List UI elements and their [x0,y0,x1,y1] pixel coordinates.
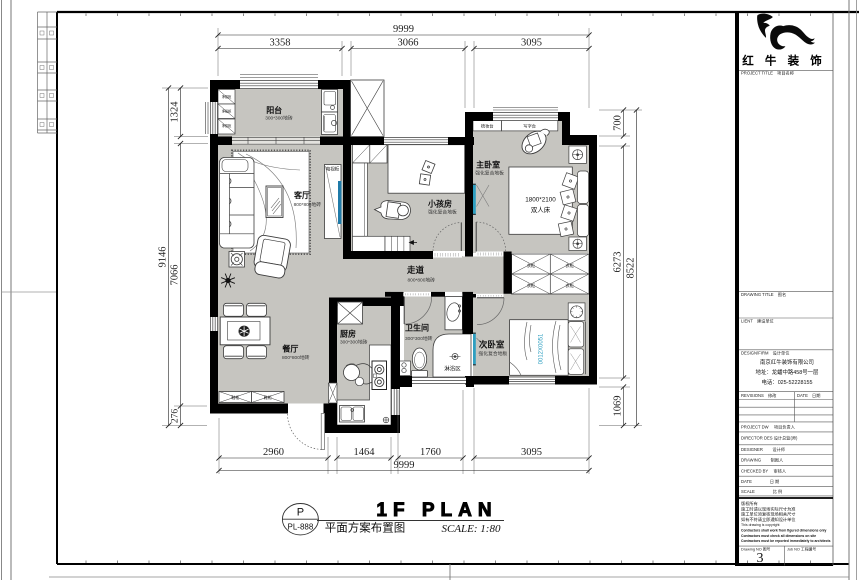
svg-text:如有不符请立即通知设计单位: 如有不符请立即通知设计单位 [741,516,795,523]
svg-text:1464: 1464 [354,447,376,458]
svg-text:9999: 9999 [394,460,415,471]
svg-text:7066: 7066 [170,265,181,286]
svg-text:厨房: 厨房 [340,329,356,339]
svg-text:强化复合地板: 强化复合地板 [428,208,457,215]
svg-text:强化复合地板: 强化复合地板 [479,350,508,357]
svg-text:800*800地砖: 800*800地砖 [282,354,310,361]
svg-text:3066: 3066 [398,38,419,49]
svg-text:衣柜: 衣柜 [527,282,535,289]
svg-text:PROJECT TITLE 项目名称: PROJECT TITLE 项目名称 [741,70,794,77]
svg-text:700: 700 [613,115,624,131]
svg-text:800*800地砖: 800*800地砖 [294,201,322,208]
svg-text:1324: 1324 [170,101,181,123]
svg-text:1F PLAN: 1F PLAN [376,500,497,521]
svg-text:P: P [297,507,304,519]
svg-text:3358: 3358 [270,38,291,49]
svg-text:0012X0051: 0012X0051 [539,333,545,364]
svg-text:REVISIONS 修改: REVISIONS 修改 [741,392,777,399]
svg-text:Contractors must check all dim: Contractors must check all dimensions on… [741,534,816,538]
svg-text:客厅: 客厅 [293,190,310,200]
svg-text:走道: 走道 [406,265,425,275]
svg-text:1800*2100: 1800*2100 [525,197,556,204]
svg-text:1760: 1760 [420,447,441,458]
svg-text:写字台: 写字台 [523,122,536,129]
svg-text:南京红牛装饰有限公司: 南京红牛装饰有限公司 [760,358,814,366]
svg-text:3: 3 [757,551,764,566]
svg-text:鞋柜: 鞋柜 [231,394,239,400]
svg-text:红 牛 装 饰: 红 牛 装 饰 [742,54,826,68]
svg-text:主卧室: 主卧室 [476,159,500,169]
svg-text:3095: 3095 [521,447,542,458]
svg-text:SCALE: 1:80: SCALE: 1:80 [442,523,501,535]
svg-text:9999: 9999 [393,24,414,35]
svg-text:鞋柜: 鞋柜 [264,394,272,400]
svg-text:300*300地砖: 300*300地砖 [265,115,293,122]
svg-text:地址：龙蟠中路458号一层: 地址：龙蟠中路458号一层 [756,368,820,376]
svg-text:DESIGNER 设计师: DESIGNER 设计师 [741,446,785,453]
svg-text:卫生间: 卫生间 [405,323,429,333]
svg-text:DIRECTOR DES 设计总监(师): DIRECTOR DES 设计总监(师) [741,435,798,442]
svg-text:净载柜: 净载柜 [222,94,232,99]
svg-text:LIENT 建设单位: LIENT 建设单位 [741,318,774,325]
svg-text:电话：025-52228155: 电话：025-52228155 [762,378,813,386]
svg-text:双人床: 双人床 [531,205,551,214]
svg-text:净载柜: 净载柜 [222,123,232,128]
svg-text:强化复合地板: 强化复合地板 [475,170,504,177]
svg-text:梳妆台: 梳妆台 [481,122,494,129]
svg-text:This drawing is copyright: This drawing is copyright [741,523,780,527]
svg-text:PROJECT DW 项目负责人: PROJECT DW 项目负责人 [741,423,796,430]
svg-text:净载柜: 净载柜 [222,109,232,114]
svg-text:Contractors shall work from fi: Contractors shall work from figured dime… [741,529,826,533]
svg-text:淋浴区: 淋浴区 [444,365,461,373]
svg-text:阳台: 阳台 [266,105,282,115]
svg-text:300*300地砖: 300*300地砖 [405,335,433,342]
svg-text:衣柜: 衣柜 [565,262,573,269]
svg-text:Contractors must be reported i: Contractors must be reported immediately… [741,539,831,543]
svg-text:小孩房: 小孩房 [427,199,452,209]
svg-text:CHECKED BY 审核人: CHECKED BY 审核人 [741,468,787,475]
svg-text:平面方案布置图: 平面方案布置图 [325,521,406,535]
svg-text:3095: 3095 [521,38,542,49]
svg-text:DRAWING TITLE 图名: DRAWING TITLE 图名 [741,291,786,298]
svg-text:SCALE 比 例: SCALE 比 例 [741,488,782,495]
svg-text:1069: 1069 [613,396,624,417]
svg-text:餐厅: 餐厅 [281,344,298,354]
svg-text:2960: 2960 [263,447,284,458]
svg-text:6273: 6273 [613,252,624,273]
svg-text:电视柜: 电视柜 [326,166,340,173]
svg-text:衣柜: 衣柜 [565,282,573,289]
svg-text:DESIGN/FIRM 设计单位: DESIGN/FIRM 设计单位 [741,349,789,356]
svg-text:Job NO 工程编号: Job NO 工程编号 [787,547,816,552]
svg-text:800*800地砖: 800*800地砖 [408,277,436,284]
svg-text:300*300地砖: 300*300地砖 [340,339,368,346]
svg-text:衣柜: 衣柜 [527,262,535,269]
svg-text:PL-888: PL-888 [288,523,314,532]
svg-text:次卧室: 次卧室 [479,340,505,350]
svg-text:DRAWING 制图人: DRAWING 制图人 [741,457,784,464]
svg-text:9146: 9146 [158,247,169,268]
svg-text:8522: 8522 [626,258,637,279]
svg-text:276: 276 [171,409,181,424]
